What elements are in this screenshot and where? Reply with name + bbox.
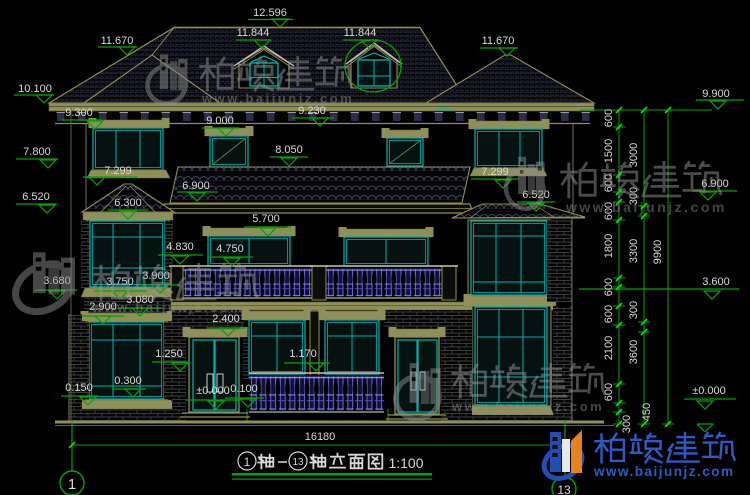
svg-text:1: 1 [68,476,76,493]
svg-text:3300: 3300 [628,239,640,263]
svg-text:3000: 3000 [628,143,640,167]
svg-text:11.670: 11.670 [101,35,134,47]
svg-text:13: 13 [292,457,304,468]
svg-text:www.baijunjz.com: www.baijunjz.com [451,399,604,414]
svg-text:300: 300 [628,301,640,319]
svg-text:12.596: 12.596 [253,7,287,19]
svg-text:www.baijunjz.com: www.baijunjz.com [565,199,727,215]
svg-text:1500: 1500 [603,139,615,163]
svg-text:1800: 1800 [603,234,615,258]
svg-text:www.baijunjz.com: www.baijunjz.com [91,300,244,315]
svg-text:3600: 3600 [628,340,640,364]
svg-text:9.300: 9.300 [65,107,93,119]
svg-text:1:100: 1:100 [388,455,423,471]
svg-text:6.520: 6.520 [22,191,50,203]
svg-text:10.100: 10.100 [18,83,52,95]
svg-text:450: 450 [641,403,653,421]
svg-text:13: 13 [557,483,571,495]
svg-text:0.150: 0.150 [65,382,93,394]
svg-text:±0.000: ±0.000 [196,385,230,397]
svg-text:600: 600 [603,109,615,127]
svg-text:4.750: 4.750 [216,243,244,255]
svg-text:300: 300 [621,415,633,433]
svg-text:3.600: 3.600 [702,276,730,288]
svg-text:7.800: 7.800 [23,146,51,158]
svg-text:2100: 2100 [603,336,615,360]
svg-text:7.299: 7.299 [104,165,132,177]
svg-text:7.299: 7.299 [481,166,509,178]
svg-text:5.700: 5.700 [252,213,280,225]
svg-text:www.baijunjz.com: www.baijunjz.com [201,91,354,106]
svg-text:6.900: 6.900 [182,180,210,192]
svg-text:16180: 16180 [305,431,336,443]
svg-text:1.170: 1.170 [289,348,317,360]
svg-text:8.050: 8.050 [275,144,303,156]
svg-text:9.000: 9.000 [206,115,234,127]
svg-text:1.250: 1.250 [155,348,183,360]
svg-text:4.830: 4.830 [166,241,194,253]
svg-text:9.230: 9.230 [298,105,326,117]
svg-text:±0.000: ±0.000 [692,385,726,397]
svg-text:11.670: 11.670 [482,35,515,47]
svg-text:9.900: 9.900 [702,88,730,100]
svg-text:1: 1 [244,455,251,469]
svg-text:600: 600 [603,305,615,323]
svg-text:9900: 9900 [652,240,664,264]
svg-text:11.844: 11.844 [344,27,377,39]
svg-text:600: 600 [603,278,615,296]
svg-text:0.300: 0.300 [114,375,142,387]
svg-text:0.100: 0.100 [230,383,258,395]
svg-text:www.baijunjz.com: www.baijunjz.com [593,464,735,479]
svg-text:11.844: 11.844 [237,27,270,39]
svg-text:6.300: 6.300 [114,197,142,209]
